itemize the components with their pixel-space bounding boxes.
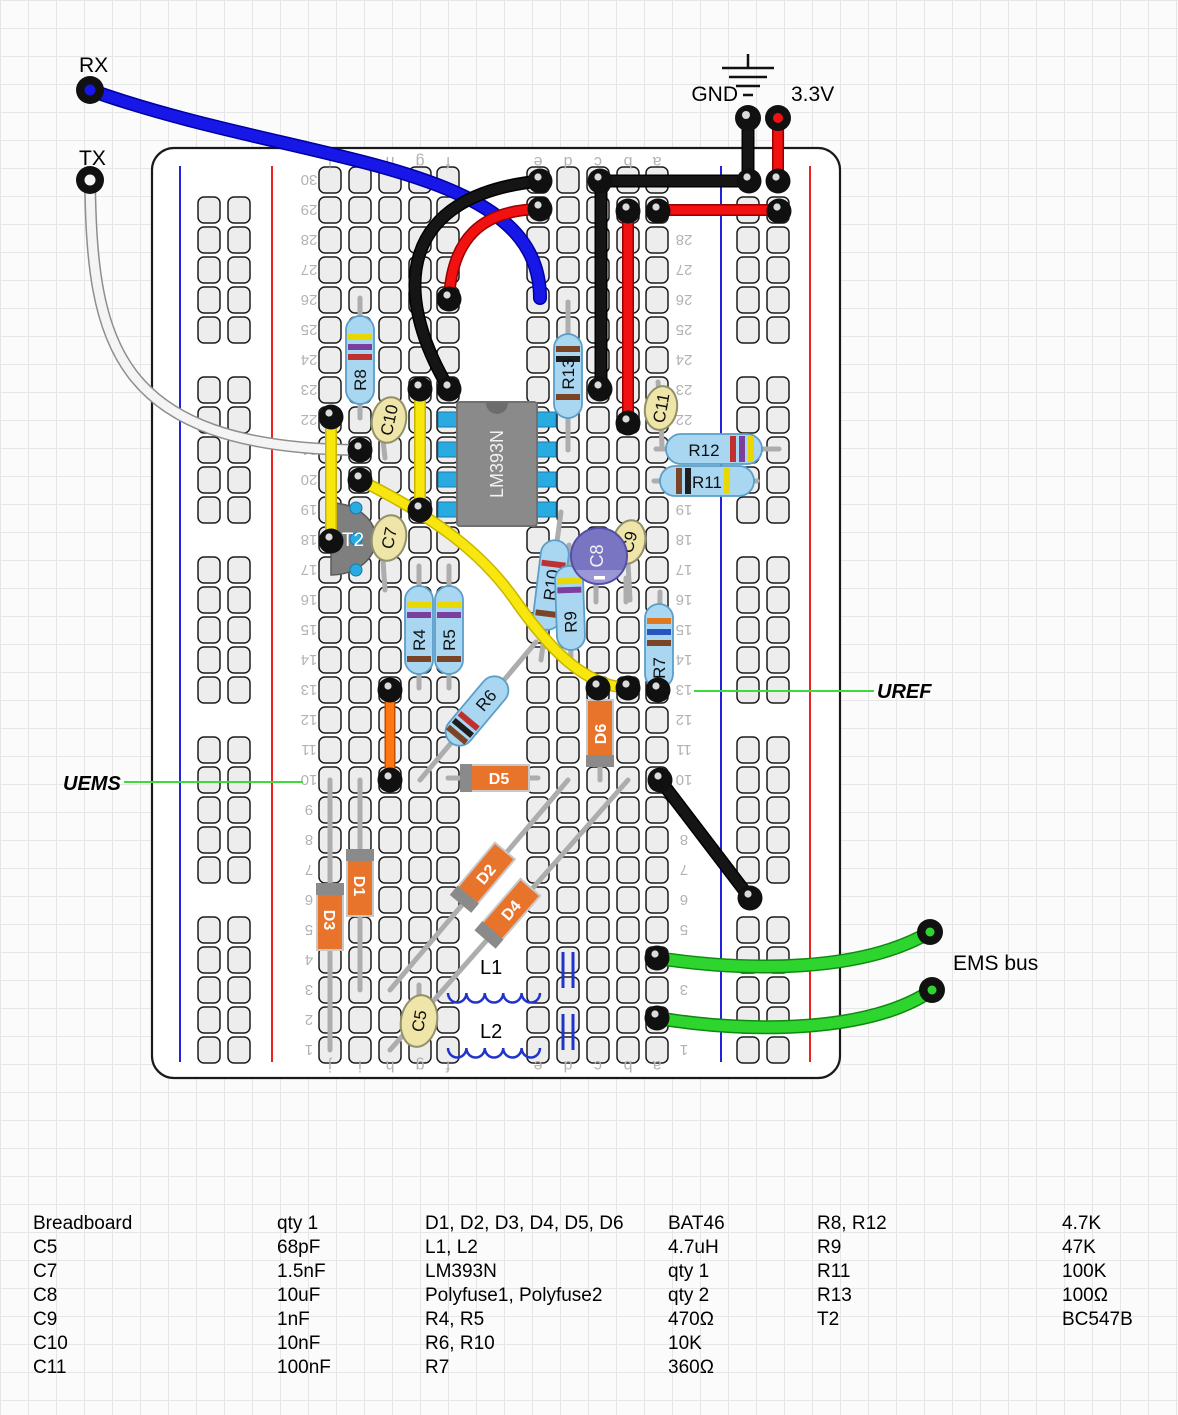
t2-label: T2 <box>342 530 364 551</box>
breadboard-hole <box>228 947 250 973</box>
row-number: 7 <box>305 861 313 878</box>
wire-connector <box>645 1006 670 1031</box>
breadboard-hole <box>646 707 668 733</box>
breadboard-hole <box>319 677 341 703</box>
parts-row: C568pF <box>33 1236 331 1260</box>
d5-label: D5 <box>489 771 510 788</box>
row-number: 15 <box>301 621 318 638</box>
row-number: 10 <box>301 771 318 788</box>
breadboard-hole <box>198 947 220 973</box>
breadboard-hole <box>617 947 639 973</box>
breadboard-hole <box>349 257 371 283</box>
row-number: 18 <box>676 531 693 548</box>
row-number: 11 <box>301 741 317 758</box>
breadboard-hole <box>228 257 250 283</box>
breadboard-hole <box>646 827 668 853</box>
breadboard-hole <box>379 317 401 343</box>
breadboard-hole <box>737 257 759 283</box>
wire-connector-highlight <box>325 533 332 540</box>
breadboard-hole <box>319 737 341 763</box>
wire-connector-highlight <box>414 381 421 388</box>
breadboard-hole <box>767 857 789 883</box>
wire-connector <box>588 169 613 194</box>
part-name: R13 <box>817 1284 1062 1308</box>
row-number: 22 <box>301 411 318 428</box>
row-number: 24 <box>301 351 318 368</box>
ems-bus-pin-core <box>926 928 935 937</box>
ems-bus-label: EMS bus <box>953 952 1038 975</box>
breadboard-hole <box>228 797 250 823</box>
breadboard-hole <box>228 1007 250 1033</box>
breadboard-hole <box>557 947 579 973</box>
diode-d3: D3 <box>316 883 344 950</box>
breadboard-hole <box>737 917 759 943</box>
breadboard-hole <box>409 527 431 553</box>
breadboard-hole <box>737 227 759 253</box>
wire-connector <box>528 197 553 222</box>
column-letter: e <box>533 153 542 170</box>
part-value: 1nF <box>277 1309 310 1330</box>
part-name: T2 <box>817 1308 1062 1332</box>
part-name: R4, R5 <box>425 1308 668 1332</box>
breadboard-hole <box>349 227 371 253</box>
wire-connector-highlight <box>443 291 450 298</box>
breadboard-hole <box>228 857 250 883</box>
breadboard-hole <box>587 617 609 643</box>
row-number: 27 <box>301 261 318 278</box>
r11-label: R11 <box>692 473 722 492</box>
wire-connector <box>616 411 641 436</box>
wire-connector <box>319 405 344 430</box>
part-name: C10 <box>33 1332 277 1356</box>
parts-row: R6, R1010K <box>425 1332 725 1356</box>
breadboard-hole <box>646 977 668 1003</box>
parts-row: C1010nF <box>33 1332 331 1356</box>
breadboard-hole <box>557 677 579 703</box>
wire-connector <box>646 199 671 224</box>
wire-connector-highlight <box>652 682 659 689</box>
resistor-r4: R4 <box>405 586 433 674</box>
row-number: 6 <box>680 891 688 908</box>
wire-connector-highlight <box>414 502 421 509</box>
part-value: BC547B <box>1062 1309 1133 1330</box>
row-number: 18 <box>301 531 318 548</box>
breadboard-hole <box>319 227 341 253</box>
column-letter: a <box>652 153 661 170</box>
breadboard-hole <box>767 1037 789 1063</box>
wire-connector-highlight <box>354 472 361 479</box>
breadboard-hole <box>228 827 250 853</box>
parts-list-column-3: R8, R124.7K R947K R11100K R13100Ω T2BC54… <box>817 1212 1133 1332</box>
wire-connector-highlight <box>325 409 332 416</box>
wire-connector <box>646 678 671 703</box>
breadboard-hole <box>557 1007 579 1033</box>
row-number: 12 <box>676 711 693 728</box>
breadboard-hole <box>587 917 609 943</box>
row-number: 8 <box>305 831 313 848</box>
breadboard-hole <box>198 287 220 313</box>
row-number: 14 <box>676 651 693 668</box>
wire-connector-highlight <box>443 381 450 388</box>
column-letter: a <box>652 1057 661 1074</box>
breadboard-hole <box>379 647 401 673</box>
resistor-r13: R13 <box>554 334 582 418</box>
row-number: 1 <box>680 1041 688 1058</box>
resistor-r11: R11 <box>660 466 754 496</box>
wire-connector-highlight <box>592 680 599 687</box>
breadboard-hole <box>527 737 549 763</box>
wire-connector <box>378 768 403 793</box>
breadboard-hole <box>617 467 639 493</box>
row-number: 26 <box>301 291 318 308</box>
breadboard-hole <box>557 707 579 733</box>
tx-pin-core <box>85 175 96 186</box>
breadboard-hole <box>198 437 220 463</box>
wire-connector <box>437 377 462 402</box>
wire-connector-highlight <box>622 203 629 210</box>
breadboard-hole <box>198 857 220 883</box>
wire-connector-highlight <box>534 201 541 208</box>
breadboard-hole <box>349 647 371 673</box>
breadboard-hole <box>646 857 668 883</box>
column-letter: c <box>594 1057 602 1074</box>
breadboard-hole <box>646 887 668 913</box>
row-number: 28 <box>301 231 318 248</box>
row-number: 11 <box>676 741 692 758</box>
breadboard-hole <box>737 767 759 793</box>
breadboard-hole <box>767 917 789 943</box>
breadboard-hole <box>767 467 789 493</box>
breadboard-hole <box>527 707 549 733</box>
breadboard-hole <box>379 887 401 913</box>
row-number: 15 <box>676 621 693 638</box>
part-value: qty 1 <box>277 1213 318 1234</box>
parts-row: L1, L24.7uH <box>425 1236 725 1260</box>
breadboard-hole <box>527 917 549 943</box>
breadboard-hole <box>349 197 371 223</box>
breadboard-hole <box>198 557 220 583</box>
d6-label: D6 <box>593 724 610 745</box>
part-value: qty 2 <box>668 1285 709 1306</box>
breadboard-hole <box>409 737 431 763</box>
column-letter: g <box>416 1057 425 1074</box>
row-number: 1 <box>305 1041 313 1058</box>
breadboard-hole <box>646 257 668 283</box>
row-number: 19 <box>676 501 693 518</box>
part-name: C11 <box>33 1356 277 1380</box>
part-value: 4.7uH <box>668 1237 719 1258</box>
fritzing-breadboard-diagram: 1122334455667788991010111112121313141415… <box>0 0 1178 1415</box>
breadboard-hole <box>617 827 639 853</box>
d1-label: D1 <box>350 876 367 897</box>
row-number: 25 <box>676 321 693 338</box>
breadboard-hole <box>587 947 609 973</box>
wire-connector <box>737 169 762 194</box>
breadboard-hole <box>409 197 431 223</box>
gnd-pin-highlight <box>742 111 750 119</box>
breadboard-hole <box>379 947 401 973</box>
breadboard-hole <box>349 677 371 703</box>
breadboard-hole <box>228 647 250 673</box>
breadboard-hole <box>228 317 250 343</box>
breadboard-hole <box>319 707 341 733</box>
breadboard-hole <box>557 467 579 493</box>
row-number: 9 <box>305 801 313 818</box>
parts-row: Breadboardqty 1 <box>33 1212 331 1236</box>
r4-label: R4 <box>410 629 429 651</box>
row-number: 28 <box>676 231 693 248</box>
parts-row: LM393Nqty 1 <box>425 1260 725 1284</box>
row-number: 23 <box>676 381 693 398</box>
breadboard-hole <box>379 287 401 313</box>
breadboard-hole <box>198 977 220 1003</box>
uref-label: UREF <box>877 681 932 703</box>
breadboard-hole <box>646 557 668 583</box>
breadboard-hole <box>379 797 401 823</box>
row-number: 17 <box>301 561 318 578</box>
breadboard-hole <box>617 797 639 823</box>
breadboard-hole <box>198 917 220 943</box>
breadboard-hole <box>319 347 341 373</box>
component-lead <box>383 560 385 590</box>
breadboard-hole <box>767 587 789 613</box>
part-value: 100nF <box>277 1357 331 1378</box>
r5-label: R5 <box>440 629 459 651</box>
part-name: C9 <box>33 1308 277 1332</box>
resistor-r12: R12 <box>666 434 762 464</box>
breadboard-hole <box>737 977 759 1003</box>
breadboard-hole <box>198 197 220 223</box>
breadboard-hole <box>527 1007 549 1033</box>
breadboard-hole <box>767 407 789 433</box>
breadboard-hole <box>557 257 579 283</box>
breadboard-hole <box>228 197 250 223</box>
breadboard-hole <box>228 737 250 763</box>
v33-label: 3.3V <box>791 83 834 106</box>
c8-minus-mark <box>594 576 605 580</box>
breadboard-hole <box>767 317 789 343</box>
diode-d5: D5 <box>460 764 529 792</box>
breadboard-hole <box>198 227 220 253</box>
breadboard-hole <box>527 377 549 403</box>
part-name: LM393N <box>425 1260 668 1284</box>
column-letter: f <box>445 1057 450 1074</box>
part-value: 360Ω <box>668 1357 714 1378</box>
breadboard-hole <box>228 467 250 493</box>
parts-row: R4, R5470Ω <box>425 1308 725 1332</box>
part-name: C8 <box>33 1284 277 1308</box>
part-name: C7 <box>33 1260 277 1284</box>
breadboard-hole <box>617 647 639 673</box>
breadboard-hole <box>557 227 579 253</box>
row-number: 3 <box>680 981 688 998</box>
breadboard-hole <box>617 977 639 1003</box>
part-value: qty 1 <box>668 1261 709 1282</box>
breadboard-hole <box>737 617 759 643</box>
wire-connector <box>738 886 763 911</box>
breadboard-hole <box>767 287 789 313</box>
breadboard-hole <box>587 467 609 493</box>
breadboard-hole <box>646 227 668 253</box>
ems-bus-pin-core <box>928 986 937 995</box>
breadboard-hole <box>737 827 759 853</box>
breadboard-hole <box>198 647 220 673</box>
row-number: 12 <box>301 711 318 728</box>
column-letter: e <box>533 1057 542 1074</box>
breadboard-hole <box>198 617 220 643</box>
wire-connector-highlight <box>384 682 391 689</box>
column-letter: d <box>564 1057 573 1074</box>
resistor-r8: R8 <box>346 316 374 404</box>
breadboard-hole <box>379 917 401 943</box>
breadboard-hole <box>228 977 250 1003</box>
breadboard-hole <box>437 827 459 853</box>
breadboard-hole <box>587 407 609 433</box>
wire-connector <box>645 946 670 971</box>
breadboard-hole <box>527 827 549 853</box>
wire-connector <box>378 678 403 703</box>
breadboard-hole <box>228 497 250 523</box>
wire-connector-highlight <box>384 772 391 779</box>
row-number: 25 <box>301 321 318 338</box>
part-name: Breadboard <box>33 1212 277 1236</box>
breadboard-hole <box>767 557 789 583</box>
breadboard-hole <box>646 917 668 943</box>
column-letter: h <box>386 1057 395 1074</box>
capacitor-c8: C8 <box>570 528 628 584</box>
breadboard-hole <box>587 647 609 673</box>
parts-row: C11100nF <box>33 1356 331 1380</box>
breadboard-hole <box>646 797 668 823</box>
breadboard-hole <box>617 857 639 883</box>
resistor-r7: R7 <box>645 604 673 688</box>
column-letter: f <box>445 153 450 170</box>
part-value: 100K <box>1062 1261 1106 1282</box>
breadboard-hole <box>319 317 341 343</box>
wire-connector-highlight <box>594 173 601 180</box>
breadboard-hole <box>646 287 668 313</box>
breadboard-hole <box>437 857 459 883</box>
row-number: 4 <box>305 951 313 968</box>
part-name: D1, D2, D3, D4, D5, D6 <box>425 1212 668 1236</box>
l2-label: L2 <box>480 1021 502 1043</box>
breadboard-hole <box>767 377 789 403</box>
wire-connector <box>348 468 373 493</box>
breadboard-hole <box>198 767 220 793</box>
breadboard-hole <box>198 677 220 703</box>
r13-label: R13 <box>559 358 578 389</box>
row-number: 16 <box>676 591 693 608</box>
wire-connector <box>408 377 433 402</box>
rx-label: RX <box>79 54 108 77</box>
wire-connector-highlight <box>651 950 658 957</box>
part-value: 47K <box>1062 1237 1096 1258</box>
breadboard-hole <box>737 497 759 523</box>
breadboard-hole <box>557 917 579 943</box>
parts-row: D1, D2, D3, D4, D5, D6BAT46 <box>425 1212 725 1236</box>
breadboard-hole <box>557 797 579 823</box>
breadboard-hole <box>646 317 668 343</box>
row-number: 29 <box>301 201 318 218</box>
breadboard-hole <box>228 617 250 643</box>
breadboard-hole <box>198 737 220 763</box>
breadboard-hole <box>767 227 789 253</box>
wire-connector-highlight <box>354 442 361 449</box>
breadboard-hole <box>437 797 459 823</box>
breadboard-hole <box>379 347 401 373</box>
breadboard-hole <box>198 257 220 283</box>
row-number: 26 <box>676 291 693 308</box>
breadboard-hole <box>437 947 459 973</box>
breadboard-hole <box>646 527 668 553</box>
part-name: R8, R12 <box>817 1212 1062 1236</box>
column-letter: i <box>358 1057 362 1074</box>
row-number: 19 <box>301 501 318 518</box>
ic-label: LM393N <box>487 430 507 498</box>
breadboard-hole <box>587 497 609 523</box>
row-number: 10 <box>676 771 693 788</box>
row-number: 6 <box>305 891 313 908</box>
breadboard-hole <box>319 287 341 313</box>
row-number: 3 <box>305 981 313 998</box>
breadboard-hole <box>319 587 341 613</box>
wire-connector <box>766 169 791 194</box>
c8-label: C8 <box>587 544 607 567</box>
row-number: 27 <box>676 261 693 278</box>
wire-connector <box>616 676 641 701</box>
gnd-label: GND <box>691 83 738 106</box>
breadboard-hole <box>228 227 250 253</box>
breadboard-hole <box>617 707 639 733</box>
wire-connector-highlight <box>744 890 751 897</box>
breadboard-hole <box>737 287 759 313</box>
wire-connector <box>408 498 433 523</box>
wire-connector <box>767 199 792 224</box>
part-value: 100Ω <box>1062 1285 1108 1306</box>
breadboard-hole <box>228 377 250 403</box>
row-number: 5 <box>680 921 688 938</box>
part-value: 10K <box>668 1333 702 1354</box>
breadboard-hole <box>228 767 250 793</box>
breadboard-hole <box>527 947 549 973</box>
breadboard-hole <box>737 1037 759 1063</box>
row-number: 22 <box>676 411 693 428</box>
column-letter: j <box>328 1057 333 1074</box>
breadboard-hole <box>349 707 371 733</box>
part-value: 1.5nF <box>277 1261 326 1282</box>
r8-label: R8 <box>351 369 370 391</box>
breadboard-hole <box>527 677 549 703</box>
breadboard-hole <box>767 257 789 283</box>
diode-d1: D1 <box>346 849 374 916</box>
breadboard-hole <box>646 347 668 373</box>
t2-pin <box>350 502 362 514</box>
breadboard-hole <box>198 1037 220 1063</box>
row-number: 20 <box>301 471 318 488</box>
column-letter: c <box>594 153 602 170</box>
resistor-r5: R5 <box>435 586 463 674</box>
wire-connector-highlight <box>772 173 779 180</box>
breadboard-hole <box>587 887 609 913</box>
v33-pin-core <box>773 113 783 123</box>
row-number: 7 <box>680 861 688 878</box>
wire-connector-highlight <box>743 173 750 180</box>
part-value: BAT46 <box>668 1213 725 1234</box>
breadboard-hole <box>198 587 220 613</box>
wire-connector <box>648 768 673 793</box>
part-name: C5 <box>33 1236 277 1260</box>
breadboard-hole <box>557 977 579 1003</box>
